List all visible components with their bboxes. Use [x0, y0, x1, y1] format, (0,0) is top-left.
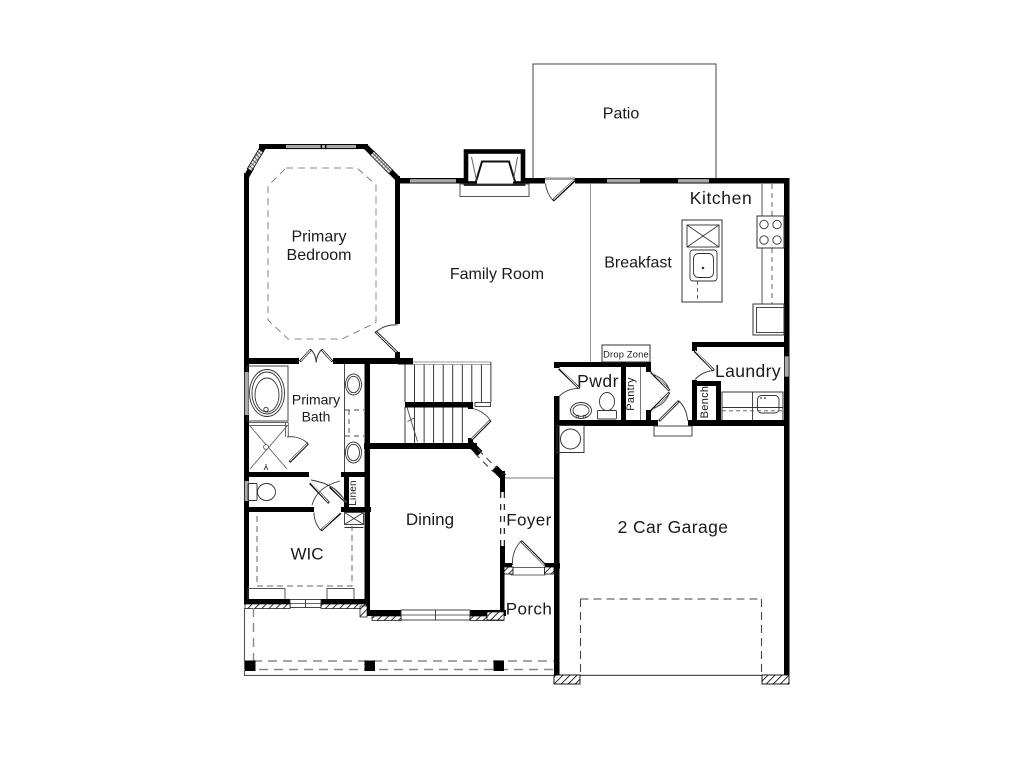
svg-text:Primary: Primary [292, 392, 340, 408]
svg-text:Breakfast: Breakfast [604, 255, 672, 272]
svg-text:Foyer: Foyer [506, 511, 551, 530]
svg-text:Linen: Linen [348, 480, 359, 505]
svg-text:Pwdr: Pwdr [577, 371, 619, 391]
svg-text:Bath: Bath [302, 409, 331, 425]
svg-text:Drop Zone: Drop Zone [603, 350, 649, 360]
svg-text:Porch: Porch [506, 600, 552, 619]
svg-text:WIC: WIC [290, 545, 323, 564]
svg-text:Pantry: Pantry [625, 377, 637, 411]
svg-text:Family Room: Family Room [450, 266, 544, 283]
svg-text:Dining: Dining [406, 510, 454, 529]
svg-text:2 Car Garage: 2 Car Garage [618, 517, 729, 537]
svg-text:Primary: Primary [291, 229, 346, 246]
svg-text:Laundry: Laundry [715, 361, 781, 381]
svg-text:Bench: Bench [699, 386, 711, 419]
svg-text:Bedroom: Bedroom [287, 247, 352, 264]
svg-text:Kitchen: Kitchen [690, 188, 753, 208]
svg-text:Patio: Patio [603, 106, 640, 123]
